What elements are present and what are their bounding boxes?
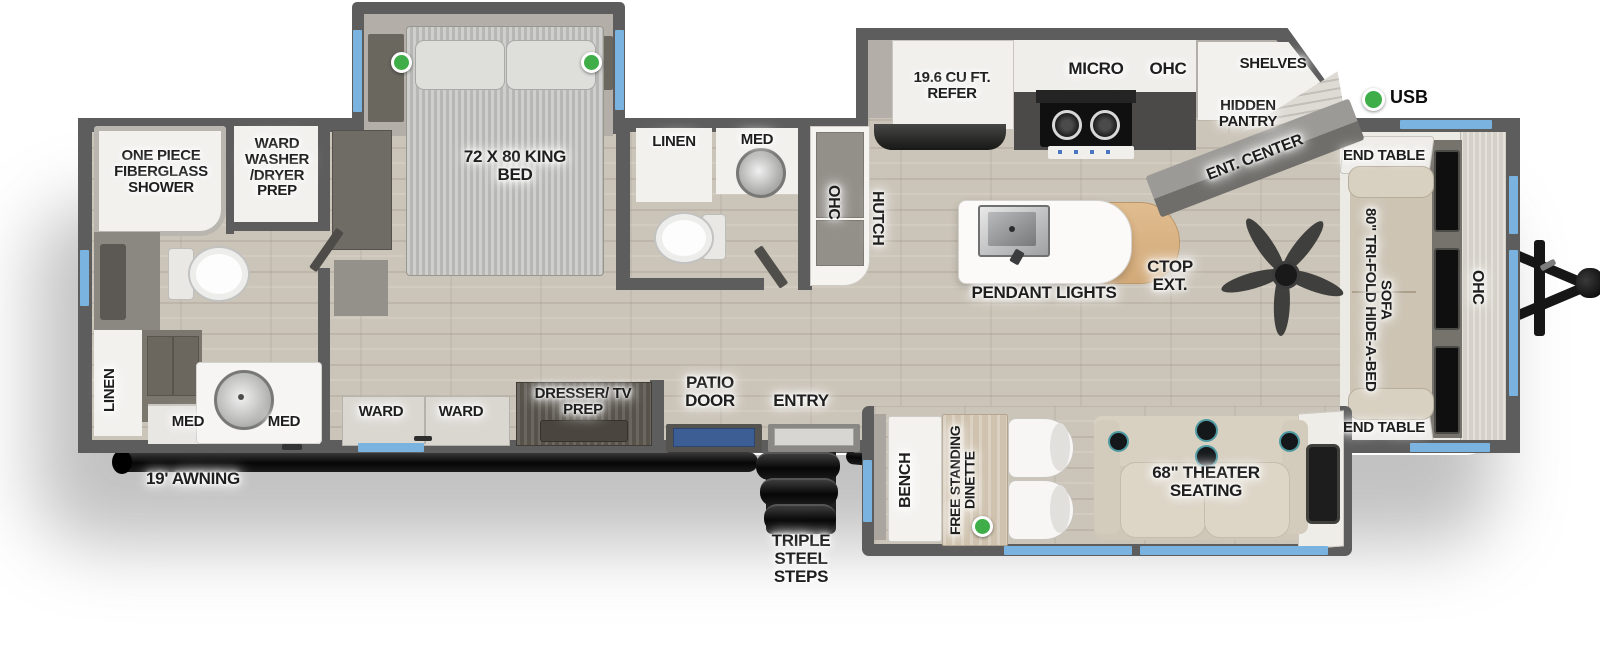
floorplan-stage: 72 X 80 KING BED 19.6 CU FT. REFER MICRO… [0, 0, 1600, 670]
wall-shower-ward [226, 124, 234, 234]
usb-led [1362, 88, 1385, 111]
window [1004, 546, 1132, 555]
label-sofa: 80" TRI-FOLD HIDE-A-BED SOFA [1362, 192, 1408, 407]
oven-knobs [1058, 150, 1122, 154]
label-med-mid: MED [726, 132, 788, 148]
ward-cabinet-handle [414, 436, 432, 441]
window [1400, 120, 1492, 129]
label-end-table-top: END TABLE [1334, 148, 1434, 164]
front-bath-sink-drain [238, 394, 244, 400]
hitch-crossbar [1534, 240, 1545, 336]
window [1410, 443, 1490, 452]
bed-pillow-left [415, 40, 505, 90]
label-shelves: SHELVES [1228, 56, 1318, 72]
window [1509, 250, 1518, 396]
island-sink-drain [1009, 226, 1015, 232]
label-ctop-ext: CTOP EXT. [1138, 258, 1202, 294]
label-entry: ENTRY [770, 392, 832, 410]
nightstand-left [368, 34, 404, 122]
range-hood [1036, 90, 1136, 103]
label-theater: 68" THEATER SEATING [1126, 464, 1286, 500]
dinette-led [972, 516, 993, 537]
dinette-chair [1008, 480, 1074, 540]
wall-midbath-left [616, 124, 630, 290]
entry-door-step [774, 428, 854, 446]
window [353, 30, 362, 112]
cup-holder [1108, 431, 1129, 452]
tv [1306, 444, 1340, 524]
label-med-left: MED [160, 414, 216, 430]
hitch-coupler [1576, 268, 1600, 298]
patio-door-glass [673, 428, 755, 447]
window [358, 443, 424, 452]
awning-end-cap [112, 450, 132, 474]
front-window-slat [1434, 346, 1460, 434]
label-hutch-ohc: OHC [824, 164, 858, 240]
midbath-sink [736, 148, 786, 198]
window [863, 460, 872, 522]
label-bench: BENCH [898, 444, 930, 516]
cabinet-door [147, 336, 173, 396]
cup-holder [1195, 419, 1218, 442]
label-end-table-bottom: END TABLE [1334, 420, 1434, 436]
bed-light-right [581, 52, 602, 73]
dinette-chair [1008, 418, 1074, 478]
bottom-wall-vent [282, 444, 302, 450]
label-kitchen-ohc: OHC [1142, 60, 1194, 78]
label-patio-door: PATIO DOOR [678, 374, 742, 410]
label-refer: 19.6 CU FT. REFER [894, 70, 1010, 102]
label-med-right: MED [256, 414, 312, 430]
wall-midbath-bottom [616, 278, 764, 290]
label-micro: MICRO [1058, 60, 1134, 78]
label-ward-b: WARD [432, 404, 490, 420]
bed-light-left [391, 52, 412, 73]
cup-holder [1279, 431, 1300, 452]
wall-under-ward-room [234, 222, 330, 231]
label-linen-mid: LINEN [640, 134, 708, 150]
toilet-bowl [188, 246, 250, 302]
label-ward-a: WARD [352, 404, 410, 420]
bedroom-panel [334, 260, 388, 316]
bath-counter-door [100, 244, 126, 320]
chair-back [1050, 485, 1070, 533]
refrigerator-base [874, 124, 1006, 150]
label-hidden-pantry: HIDDEN PANTRY [1206, 98, 1290, 130]
label-front-ohc: OHC [1468, 252, 1502, 322]
label-hutch: HUTCH [868, 176, 900, 260]
dresser-drawer [540, 420, 628, 442]
window [615, 30, 624, 110]
label-king-bed: 72 X 80 KING BED [450, 148, 580, 184]
chair-back [1050, 423, 1070, 471]
front-window-slat [1434, 150, 1460, 232]
toilet-bowl [654, 212, 714, 264]
label-dresser: DRESSER/ TV PREP [524, 386, 642, 418]
label-steps: TRIPLE STEEL STEPS [746, 532, 856, 586]
label-awning: 19' AWNING [138, 470, 248, 488]
label-shower: ONE PIECE FIBERGLASS SHOWER [102, 148, 220, 195]
window [80, 250, 89, 306]
ceiling-fan-hub [1272, 261, 1300, 289]
label-usb: USB [1390, 87, 1428, 108]
label-pendant-lights: PENDANT LIGHTS [964, 284, 1124, 302]
step [764, 504, 836, 532]
step [756, 452, 840, 480]
dinette-slide-lining [874, 414, 886, 540]
step [760, 478, 838, 506]
burner [1052, 110, 1082, 140]
front-window-slat [1434, 248, 1460, 330]
wall-dresser-stub [650, 380, 664, 440]
label-ward-washer: WARD WASHER /DRYER PREP [238, 136, 316, 199]
label-linen-front: LINEN [102, 348, 134, 432]
wall-bedroom-bath-front [318, 124, 330, 224]
window [1509, 176, 1518, 234]
burner [1090, 110, 1120, 140]
window [1140, 546, 1328, 555]
